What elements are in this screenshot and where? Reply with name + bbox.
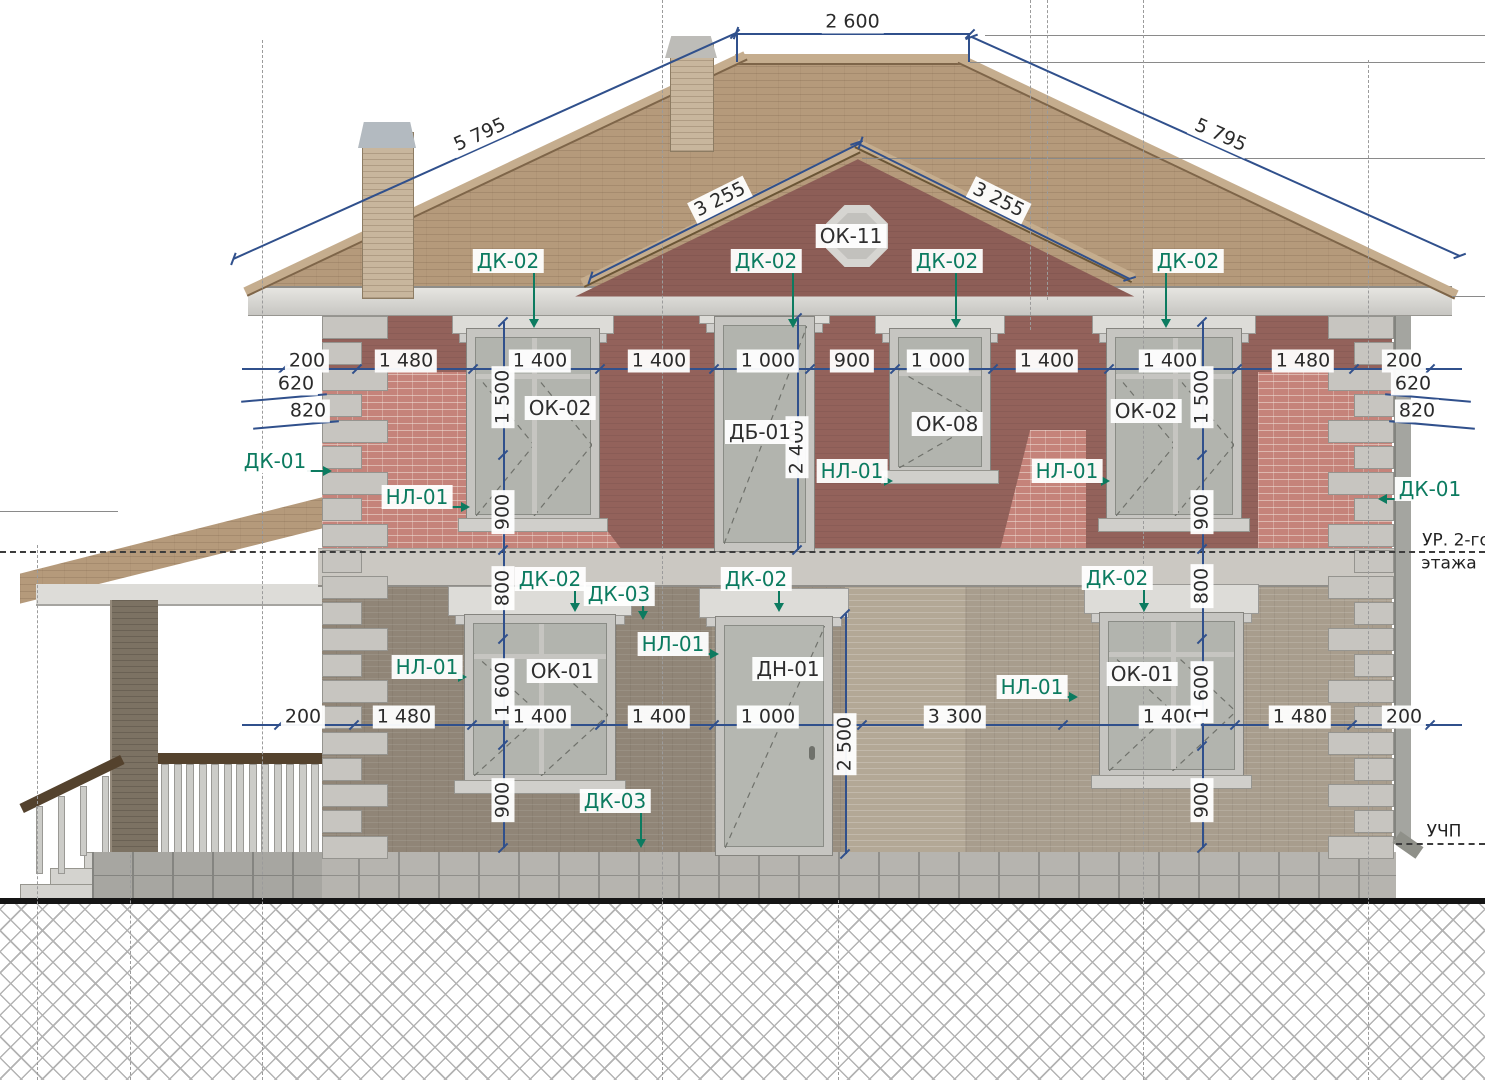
element-tag: ДН-01: [752, 657, 823, 681]
callout-label: ДК-02: [912, 249, 983, 273]
porch-baluster: [311, 764, 319, 854]
dimension-label: 5 795: [1187, 112, 1253, 159]
door-dn01: [715, 616, 833, 856]
dimension-label: 800: [492, 566, 515, 610]
quoin-block: [1328, 836, 1394, 859]
quoin-block: [322, 420, 388, 443]
callout-arrow: [710, 649, 719, 659]
dimension-label: 900: [492, 778, 515, 822]
porch-baluster: [199, 764, 207, 854]
dimension-label: 800: [1191, 564, 1214, 608]
quoin-block: [1354, 550, 1394, 573]
callout-label: ДК-02: [1153, 249, 1224, 273]
dimension-label: 1 000: [907, 350, 969, 373]
quoin-block: [322, 602, 362, 625]
callout-arrow: [788, 319, 798, 328]
porch-baluster: [249, 764, 257, 854]
dimension-label: 900: [1191, 778, 1214, 822]
callout-leader: [778, 591, 780, 603]
quoin-block: [1328, 576, 1394, 599]
porch-fascia: [36, 584, 336, 606]
dimension-label: 820: [1395, 400, 1439, 423]
quoin-block: [322, 680, 388, 703]
quoin-block: [322, 784, 388, 807]
dimension-label: 3 300: [924, 706, 986, 729]
element-tag: ОК-02: [525, 396, 596, 420]
callout-arrow: [636, 839, 646, 848]
dimension-label: 1 400: [509, 350, 571, 373]
callout-leader: [1143, 590, 1145, 603]
helper-line: [985, 35, 1485, 36]
dimension-label: 200: [281, 706, 325, 729]
plinth: [318, 852, 1396, 900]
callout-arrow: [951, 319, 961, 328]
axis-line: [130, 855, 131, 1080]
quoin-block: [1328, 420, 1394, 443]
window-ok01-left: [464, 614, 616, 784]
dimension-label: 200: [285, 350, 329, 373]
window-ok01-right: [1099, 612, 1244, 779]
callout-label: ДК-01: [240, 449, 311, 473]
callout-leader: [533, 273, 535, 319]
dimension-label: 900: [1191, 490, 1214, 534]
callout-label: ДК-03: [584, 582, 655, 606]
quoin-block: [1328, 628, 1394, 651]
dimension-label: 1 480: [1272, 350, 1334, 373]
callout-label: ДК-02: [721, 567, 792, 591]
quoin-block: [322, 810, 362, 833]
porch-baluster: [299, 764, 307, 854]
quoin-block: [322, 550, 362, 573]
callout-arrow: [1378, 494, 1387, 504]
dimension-label: 200: [1382, 706, 1426, 729]
dimension-label: 5 795: [447, 112, 513, 159]
window-glass: [1108, 621, 1235, 770]
callout-leader: [1165, 273, 1167, 319]
element-tag: ОК-01: [1107, 662, 1178, 686]
quoin-block: [1354, 498, 1394, 521]
porch-baluster: [211, 764, 219, 854]
window-mullion: [1171, 622, 1176, 769]
dimension-label: 1 400: [509, 706, 571, 729]
witness-line: [968, 33, 970, 62]
level-line-ground: [1396, 843, 1485, 845]
callout-arrow: [1069, 692, 1078, 702]
chimney-left-cap: [358, 122, 416, 148]
axis-line: [1143, 0, 1144, 1080]
porch-base: [92, 852, 322, 900]
callout-label: ДК-02: [515, 567, 586, 591]
porch-baluster: [274, 764, 282, 854]
stair-baluster: [80, 786, 87, 856]
dimension-label: 1 400: [628, 350, 690, 373]
dimension-label: 900: [492, 490, 515, 534]
callout-leader: [792, 273, 794, 319]
witness-line: [736, 33, 738, 62]
helper-line: [862, 158, 1485, 159]
stair-baluster: [58, 796, 65, 874]
window-sill: [1098, 518, 1250, 532]
quoin-block: [1328, 472, 1394, 495]
window-sill: [881, 470, 999, 484]
callout-arrow: [323, 466, 332, 476]
dimension-label: 2 500: [834, 713, 857, 775]
callout-label: ДК-02: [1082, 566, 1153, 590]
dimension-label: 1 000: [737, 350, 799, 373]
chimney-left: [362, 132, 414, 299]
callout-label: ДК-02: [473, 249, 544, 273]
dimension-label: 1 480: [375, 350, 437, 373]
ground-line: [0, 898, 1485, 904]
element-tag: ОК-02: [1111, 399, 1182, 423]
porch-baluster: [236, 764, 244, 854]
callout-label: НЛ-01: [392, 655, 463, 679]
callout-leader: [640, 813, 642, 839]
roof-ridge-cap: [735, 54, 969, 65]
dimension-label: 2 600: [821, 11, 883, 34]
axis-line: [1047, 0, 1048, 300]
quoin-block: [322, 836, 388, 859]
dimension-label: 620: [274, 373, 318, 396]
dimension-label: 1 480: [373, 706, 435, 729]
chimney-center-cap: [665, 36, 717, 58]
quoin-block: [1354, 654, 1394, 677]
stair-baluster: [102, 776, 109, 854]
callout-label: НЛ-01: [817, 459, 888, 483]
callout-label: НЛ-01: [1032, 459, 1103, 483]
quoin-block: [1354, 394, 1394, 417]
quoin-block: [322, 316, 388, 339]
callout-label: НЛ-01: [382, 485, 453, 509]
dimension-label: 1 600: [1191, 661, 1214, 723]
quoin-block: [1354, 758, 1394, 781]
porch-baluster: [186, 764, 194, 854]
dimension-tick: [230, 252, 236, 265]
quoin-block: [1328, 680, 1394, 703]
axis-line: [37, 545, 38, 1080]
callout-arrow: [638, 611, 648, 620]
quoin-block: [322, 758, 362, 781]
level-line-floor2: [0, 551, 1485, 553]
helper-line: [1452, 296, 1485, 297]
element-tag: ОК-01: [527, 659, 598, 683]
window-sill: [458, 518, 608, 532]
callout-label: ДК-02: [731, 249, 802, 273]
dimension-label: 1 600: [492, 658, 515, 720]
callout-arrow: [1139, 603, 1149, 612]
axis-line: [1030, 0, 1031, 330]
window-sill: [1091, 775, 1252, 789]
callout-label: ДК-03: [580, 789, 651, 813]
quoin-block: [1354, 602, 1394, 625]
level-label-ground: УЧП: [1427, 824, 1462, 841]
door-handle: [809, 746, 815, 760]
quoin-block: [1328, 316, 1394, 339]
element-tag: ОК-11: [816, 224, 887, 248]
quoin-block: [322, 498, 362, 521]
quoin-block: [322, 576, 388, 599]
quoin-block: [1328, 732, 1394, 755]
callout-label: НЛ-01: [638, 632, 709, 656]
dimension-label: 1 500: [1191, 366, 1214, 428]
dimension-label: 620: [1391, 373, 1435, 396]
callout-arrow: [570, 603, 580, 612]
porch-column: [110, 600, 158, 853]
dimension-label: 820: [286, 400, 330, 423]
quoin-block: [322, 654, 362, 677]
porch-baluster: [174, 764, 182, 854]
callout-arrow: [1161, 319, 1171, 328]
dimension-label: 1 400: [628, 706, 690, 729]
porch-baluster: [224, 764, 232, 854]
quoin-block: [322, 628, 388, 651]
callout-leader: [574, 591, 576, 603]
porch-baluster: [286, 764, 294, 854]
callout-leader: [955, 273, 957, 319]
callout-label: НЛ-01: [997, 675, 1068, 699]
quoin-block: [1354, 446, 1394, 469]
quoin-block: [1328, 524, 1394, 547]
element-tag: ОК-08: [912, 412, 983, 436]
dimension-label: 200: [1382, 350, 1426, 373]
quoin-block: [1328, 784, 1394, 807]
quoin-block: [322, 706, 362, 729]
dimension-label: 1 480: [1269, 706, 1331, 729]
callout-arrow: [774, 603, 784, 612]
dimension-label: 900: [830, 350, 874, 373]
dimension-label: 1 000: [737, 706, 799, 729]
quoin-block: [1354, 810, 1394, 833]
porch-baluster: [161, 764, 169, 854]
axis-line: [262, 40, 263, 1080]
quoin-block: [322, 732, 388, 755]
helper-line: [0, 511, 118, 512]
level-label-floor2-line1: УР. 2-го: [1422, 533, 1485, 550]
ground-hatch: [0, 904, 1485, 1080]
porch-handrail: [158, 753, 322, 764]
callout-arrow: [461, 502, 470, 512]
element-tag: ДБ-01: [725, 420, 795, 444]
axis-line: [838, 900, 839, 1080]
dimension-label: 1 400: [1016, 350, 1078, 373]
callout-arrow: [529, 319, 539, 328]
level-label-floor2-line2: этажа: [1421, 556, 1476, 573]
interfloor-band: [318, 548, 1396, 587]
axis-line: [662, 0, 663, 1080]
dimension-label: 1 500: [492, 366, 515, 428]
elevation-drawing: УР. 2-го этажа УЧП 2001 4801 4001 4001 0…: [0, 0, 1485, 1080]
window-mullion: [539, 624, 544, 774]
quoin-block: [322, 524, 388, 547]
callout-label: ДК-01: [1395, 477, 1466, 501]
